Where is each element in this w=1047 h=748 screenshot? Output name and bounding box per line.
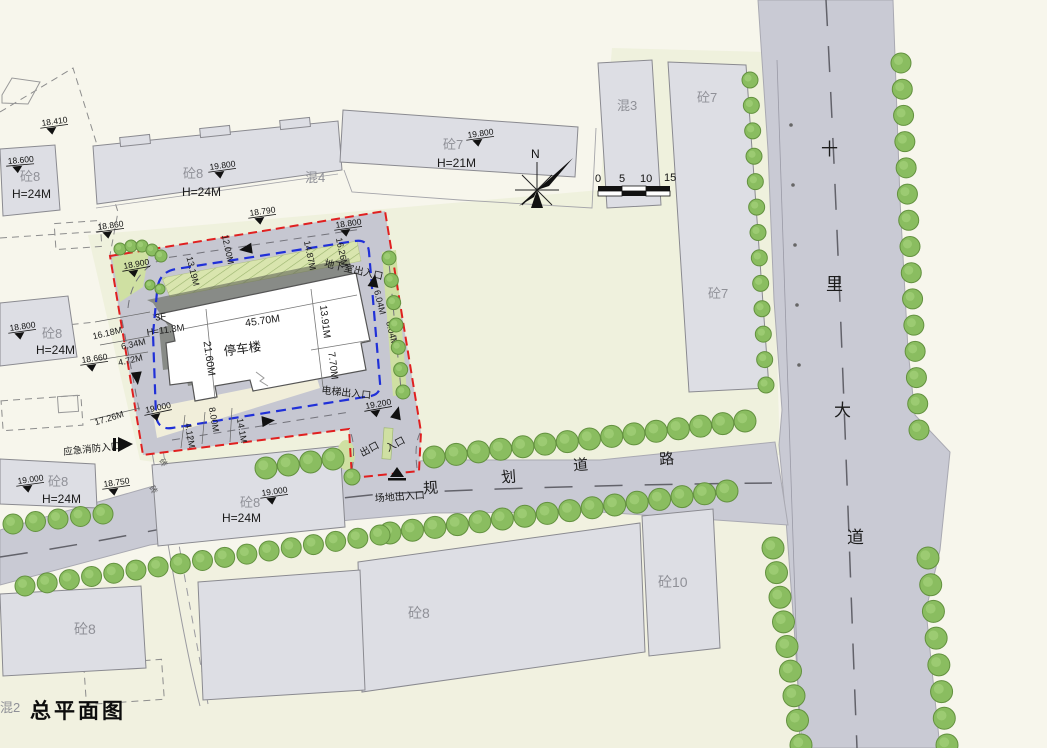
vroad-char-1: 十 — [821, 140, 838, 159]
drawing-title: 总平面图 — [30, 699, 126, 723]
building-material-label: 砼8 — [408, 605, 430, 621]
vroad-char-3: 大 — [834, 401, 851, 420]
building-material-label: 砼8 — [183, 166, 203, 181]
building-material-label: 混4 — [305, 170, 325, 185]
scale-tick-0: 0 — [595, 173, 601, 185]
building-height-label: H=24M — [182, 185, 221, 199]
building-material-label: 混2 — [0, 700, 20, 715]
building-height-label: H=24M — [42, 492, 81, 506]
hroad-char-2: 划 — [501, 469, 517, 487]
scale-tick-5: 5 — [619, 173, 625, 185]
building-material-label: 砼8 — [240, 495, 260, 510]
building-material-label: 砼8 — [74, 621, 96, 637]
north-label: N — [531, 147, 540, 161]
master-plan-canvas: 砼8 H=24M 砼8 H=24M 混4 砼7 H=21M 混3 砼7 砼7 砼… — [0, 0, 1047, 748]
building-material-label: 砼10 — [658, 574, 688, 590]
building-height-label: H=24M — [222, 511, 261, 525]
hroad-char-3: 道 — [573, 457, 589, 475]
building-height-label: H=21M — [437, 156, 476, 170]
building-material-label: 砼7 — [708, 286, 728, 301]
building-b11 — [0, 586, 146, 676]
building-material-label: 砼7 — [443, 137, 463, 152]
vroad-char-4: 道 — [847, 528, 864, 547]
parking-floors-label: 3F — [154, 311, 167, 323]
building-height-label: H=24M — [12, 187, 51, 201]
building-b12 — [198, 570, 365, 700]
building-material-label: 砼8 — [48, 474, 68, 489]
building-material-label: 砼8 — [20, 169, 40, 184]
master-plan-page: 砼8 H=24M 砼8 H=24M 混4 砼7 H=21M 混3 砼7 砼7 砼… — [0, 0, 1047, 748]
scale-tick-15: 15 — [664, 172, 676, 184]
vroad-char-2: 里 — [826, 275, 843, 294]
hroad-char-4: 路 — [659, 451, 675, 469]
building-material-label: 砼7 — [697, 90, 717, 105]
building-material-label: 砼8 — [42, 326, 62, 341]
hroad-char-1: 规 — [423, 480, 439, 498]
scale-tick-10: 10 — [640, 173, 652, 185]
building-height-label: H=24M — [36, 343, 75, 357]
building-material-label: 混3 — [617, 98, 637, 113]
